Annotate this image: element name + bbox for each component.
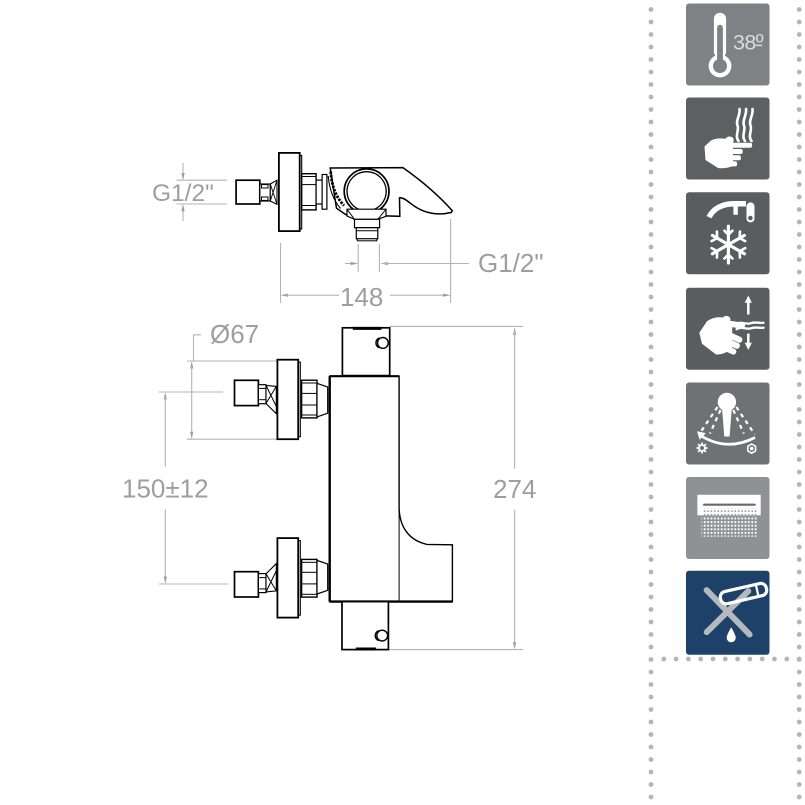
svg-text:G1/2": G1/2" — [152, 180, 214, 207]
svg-text:G1/2": G1/2" — [478, 248, 544, 278]
svg-text:148: 148 — [340, 282, 383, 312]
svg-text:Ø67: Ø67 — [210, 319, 259, 349]
svg-text:274: 274 — [493, 474, 536, 504]
svg-text:150±12: 150±12 — [122, 474, 209, 504]
svg-text:38º: 38º — [733, 31, 764, 55]
